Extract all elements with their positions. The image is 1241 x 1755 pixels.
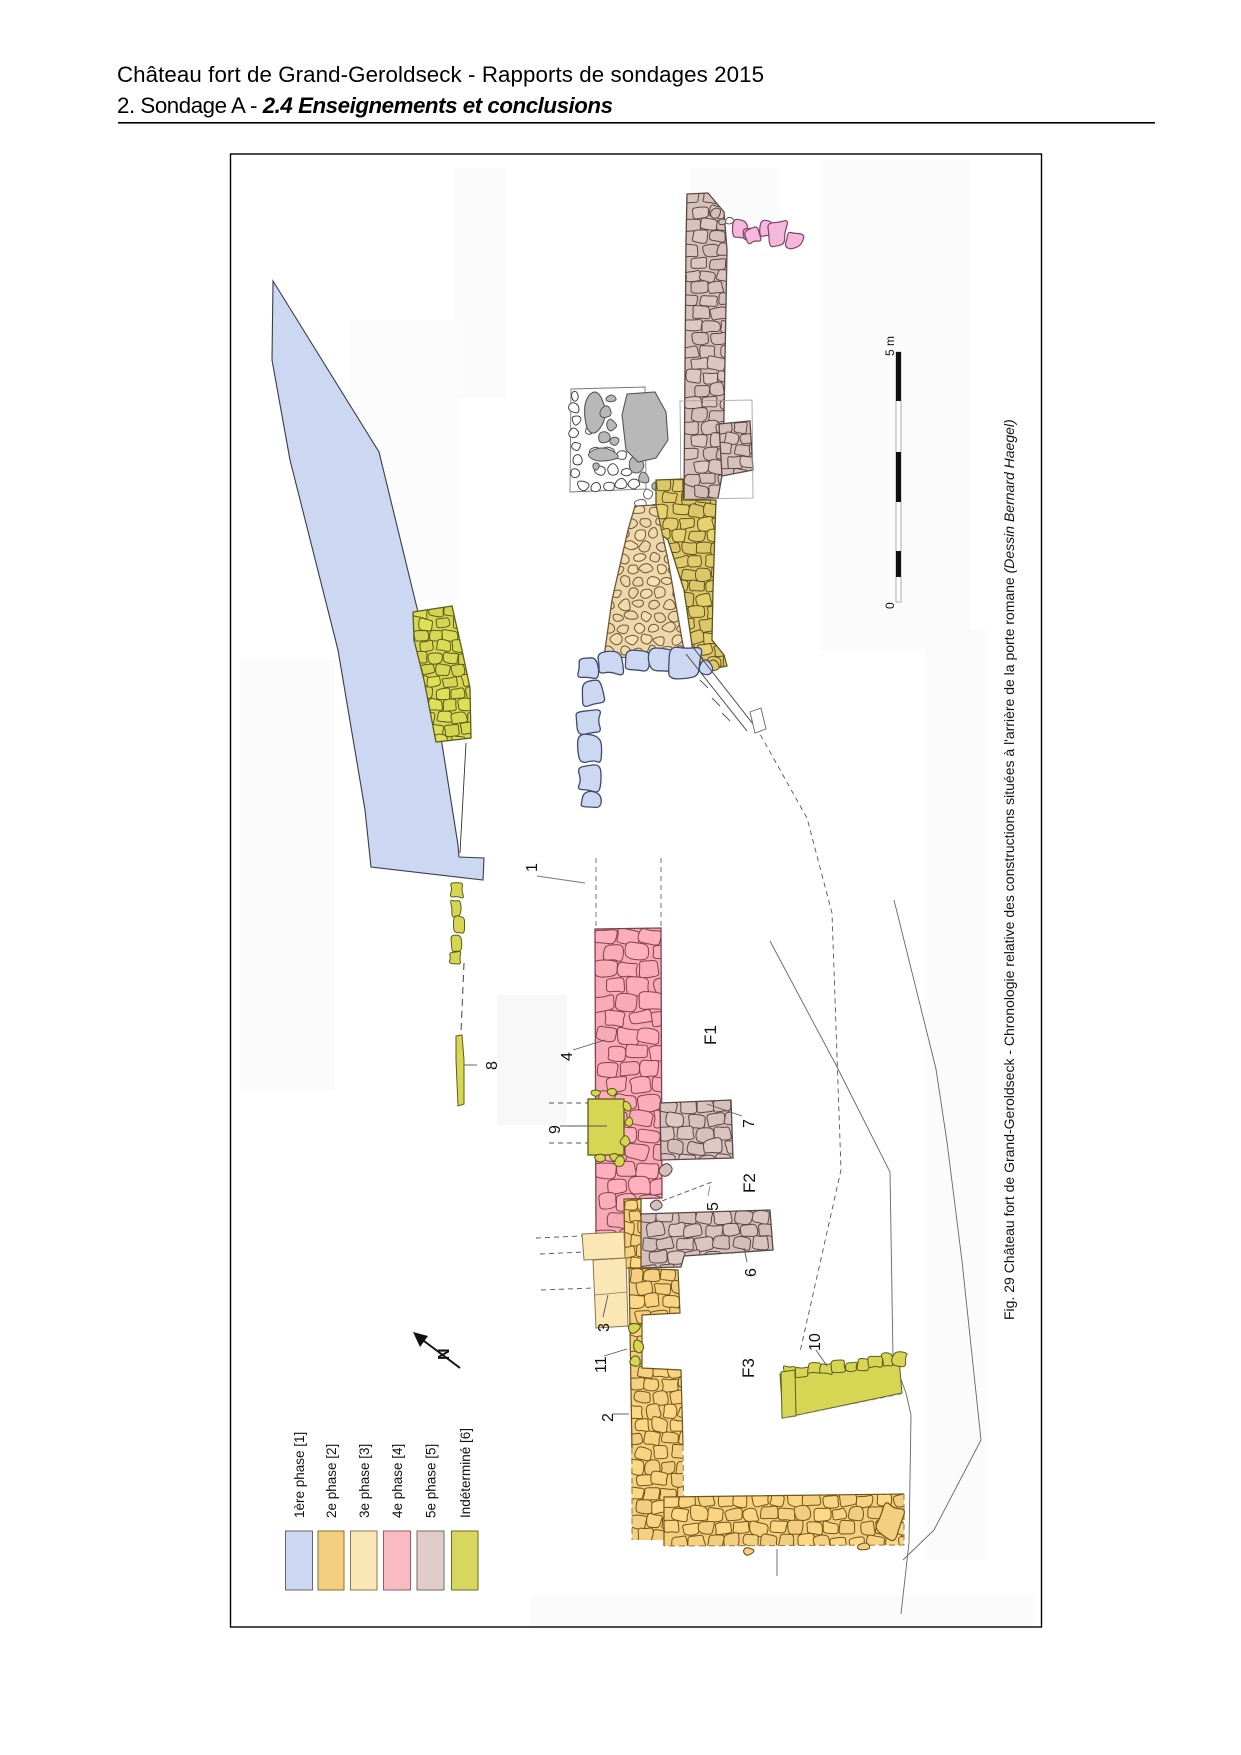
svg-text:7: 7 (741, 1119, 758, 1128)
svg-text:Fig. 29 Château fort de Grand-: Fig. 29 Château fort de Grand-Geroldseck… (1001, 419, 1017, 1320)
svg-text:5e phase [5]: 5e phase [5] (424, 1444, 439, 1518)
svg-text:Indéterminé [6]: Indéterminé [6] (458, 1428, 473, 1518)
svg-text:4e phase [4]: 4e phase [4] (390, 1444, 405, 1518)
svg-text:0: 0 (883, 602, 897, 609)
svg-text:N: N (436, 1348, 453, 1360)
svg-text:4: 4 (559, 1052, 576, 1061)
svg-text:F2: F2 (740, 1173, 759, 1193)
svg-text:2e phase [2]: 2e phase [2] (324, 1444, 339, 1518)
svg-text:3: 3 (596, 1323, 613, 1332)
svg-text:8: 8 (484, 1061, 501, 1070)
svg-text:11: 11 (593, 1356, 610, 1373)
svg-text:5 m: 5 m (883, 336, 897, 356)
svg-text:F1: F1 (701, 1025, 720, 1045)
svg-text:10: 10 (807, 1333, 824, 1351)
svg-text:1: 1 (524, 863, 541, 872)
svg-text:Château fort de Grand-Geroldse: Château fort de Grand-Geroldseck - Rappo… (117, 62, 764, 87)
svg-text:2. Sondage A - 2.4 Enseignemen: 2. Sondage A - 2.4 Enseignements et conc… (117, 93, 613, 118)
svg-text:6: 6 (743, 1268, 760, 1277)
svg-text:5: 5 (705, 1202, 722, 1211)
svg-text:1ère phase [1]: 1ère phase [1] (292, 1432, 307, 1518)
svg-text:3e phase [3]: 3e phase [3] (357, 1444, 372, 1518)
svg-text:F3: F3 (739, 1358, 758, 1378)
